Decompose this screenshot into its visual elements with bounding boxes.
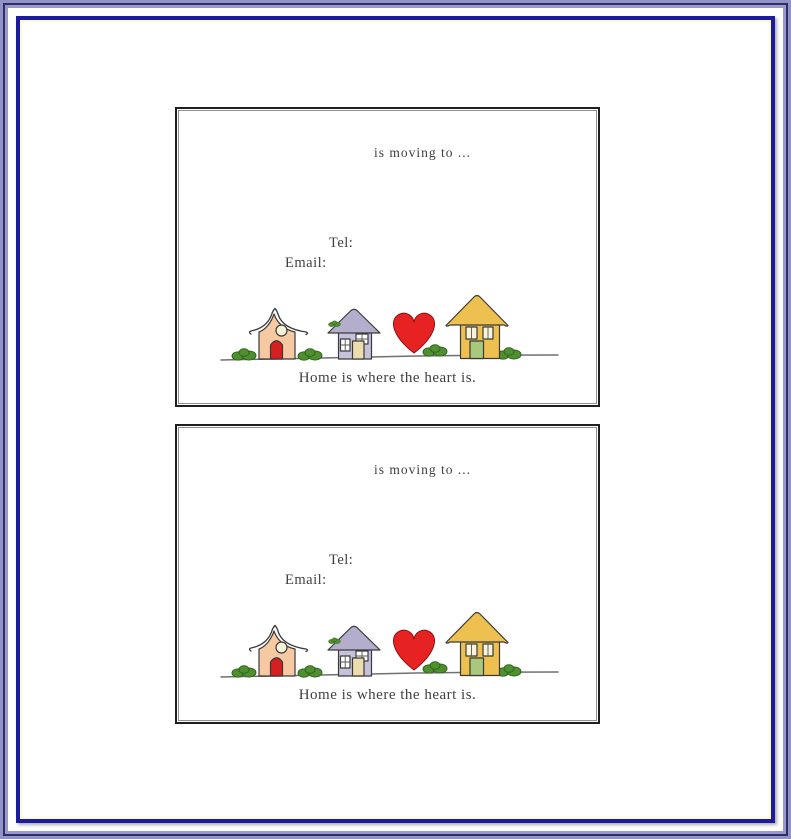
email-label: Email: — [285, 572, 327, 589]
page-frame-lavender-line: is moving to ... Tel: Email: — [5, 5, 786, 834]
square-window-icon — [483, 327, 493, 339]
green-door-icon — [470, 341, 484, 359]
home-heart-caption: Home is where the heart is. — [177, 370, 598, 387]
houses-heart-illustration — [217, 287, 567, 367]
moving-to-text: is moving to ... — [177, 145, 598, 161]
moving-card-1: is moving to ... Tel: Email: — [175, 107, 600, 407]
bush-icon — [497, 348, 521, 360]
page-frame-outer: is moving to ... Tel: Email: — [0, 0, 791, 839]
pane-window-icon — [341, 339, 351, 351]
houses-heart-illustration — [217, 604, 567, 684]
tel-label: Tel: — [329, 552, 353, 569]
round-window-icon — [276, 325, 287, 336]
page-frame-dark-line: is moving to ... Tel: Email: — [3, 3, 788, 836]
house-right-icon — [446, 296, 508, 359]
page-content: is moving to ... Tel: Email: — [22, 22, 769, 817]
page-frame-cream-line: is moving to ... Tel: Email: — [20, 20, 771, 819]
bush-icon — [298, 349, 322, 361]
square-window-icon — [466, 327, 477, 339]
page-frame-gap: is moving to ... Tel: Email: — [8, 8, 783, 831]
house-left-icon — [250, 309, 308, 360]
heart-icon — [393, 313, 434, 353]
red-door-icon — [271, 341, 283, 359]
tan-door-icon — [353, 341, 365, 359]
tel-label: Tel: — [329, 235, 353, 252]
house-middle-icon — [328, 309, 380, 359]
email-label: Email: — [285, 255, 327, 272]
moving-card-2: is moving to ... Tel: Email: Home is whe… — [175, 424, 600, 724]
bush-icon — [232, 349, 256, 361]
moving-to-text: is moving to ... — [177, 462, 598, 478]
bush-icon — [423, 345, 447, 357]
page-frame-navy-border: is moving to ... Tel: Email: — [16, 16, 775, 823]
home-heart-caption: Home is where the heart is. — [177, 687, 598, 704]
